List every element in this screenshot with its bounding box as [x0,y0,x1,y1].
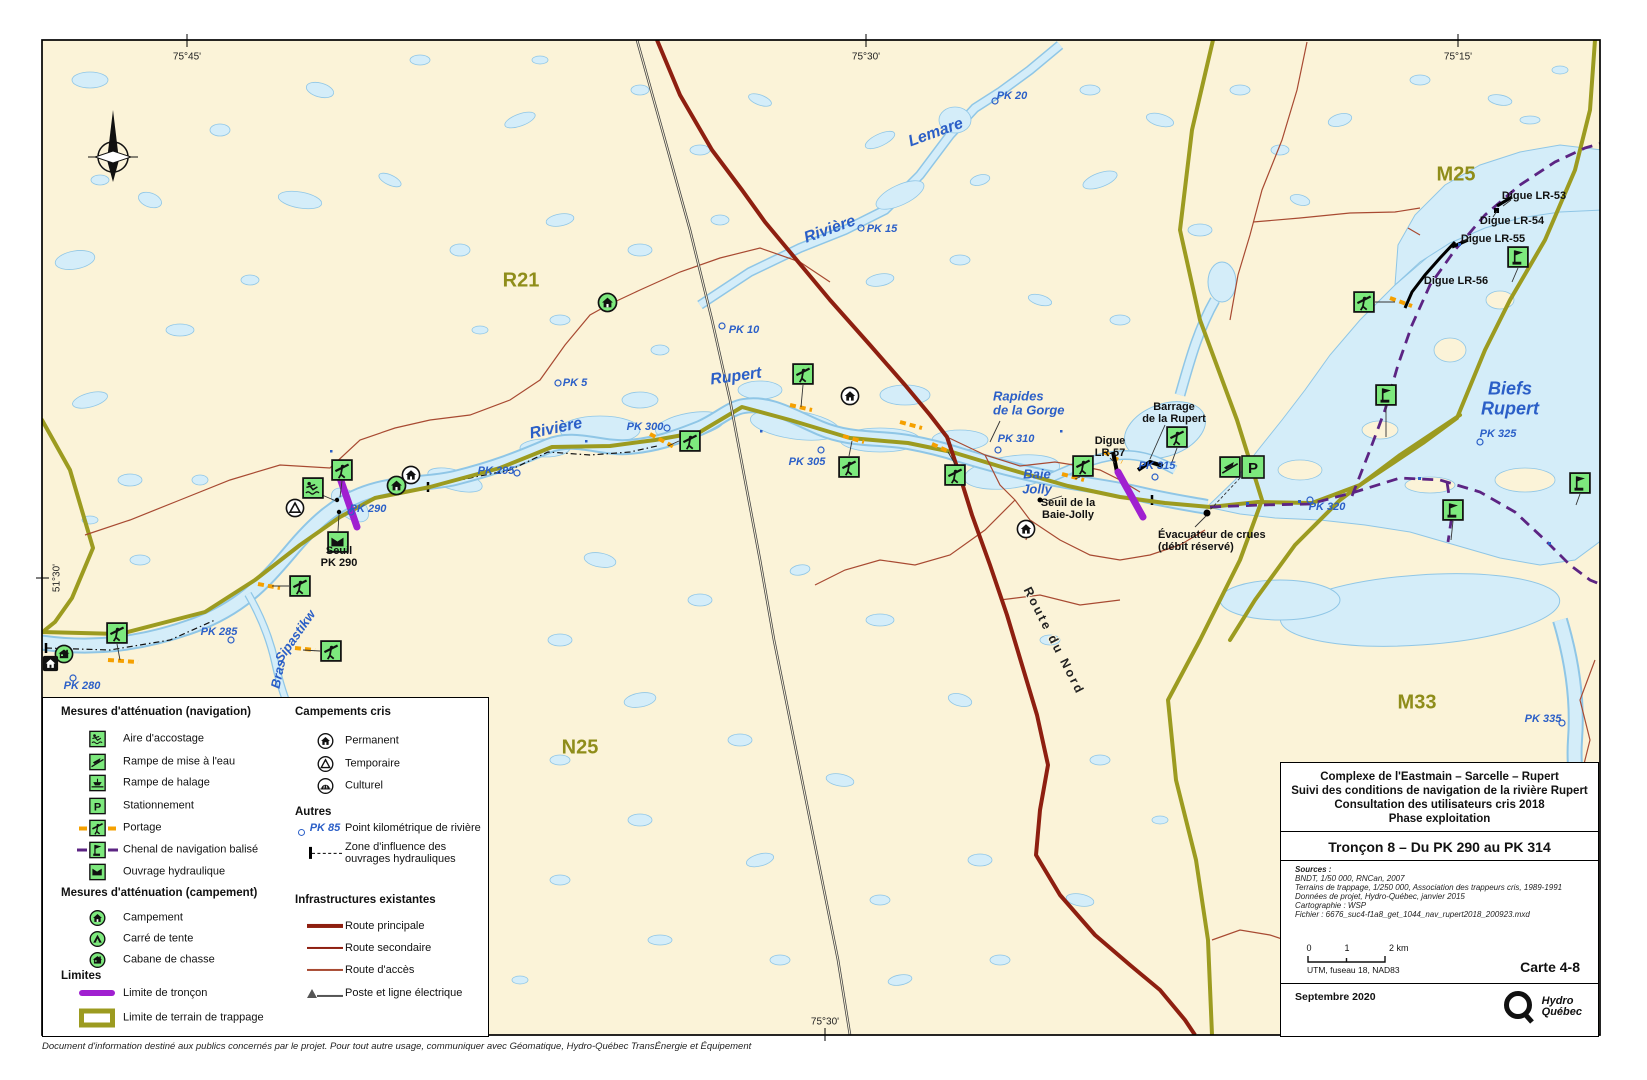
channel-flag-icon [1443,500,1463,520]
legend-section-campements-cris: Campements cris [295,706,391,718]
label-trapline-m25: M25 [1437,164,1476,187]
portage-icon [680,431,700,451]
label-pk-300: PK 300 [627,421,664,433]
legend-label: Limite de terrain de trappage [123,1012,264,1024]
portage-icon [839,457,859,477]
svg-text:P: P [1248,460,1258,477]
label-digue-lr53: Digue LR-53 [1502,190,1566,202]
scale-bar [1307,955,1397,963]
divider [1281,831,1598,832]
divider [1281,983,1598,984]
legend-item-chenal: Chenal de navigation balisé [71,842,258,859]
hydro-quebec-logo-text: Hydro Québec [1542,996,1582,1018]
parking-icon: P [1242,456,1264,478]
hydro-quebec-logo-icon [1503,989,1537,1025]
label-pk-280: PK 280 [64,680,101,692]
footer-note: Document d'information destiné aux publi… [42,1041,751,1052]
legend-item-carre-tente: Carré de tente [71,931,193,948]
dark-house-icon [43,656,58,671]
channel-flag-icon [1376,385,1396,405]
label-evacuateur: (débit réservé) [1158,541,1234,553]
legend-item-accostage: Aire d'accostage [71,731,204,748]
map-title-line: Phase exploitation [1281,813,1598,825]
legend-label-line: ouvrages hydrauliques [345,853,456,865]
label-pk-310: PK 310 [998,433,1035,445]
boat-ramp-icon [1220,457,1240,477]
portage-icon [290,576,310,596]
hydraulic-structure-icon [71,864,123,881]
label-trapline-m33: M33 [1398,692,1437,715]
legend-label: Poste et ligne électrique [345,987,462,999]
campement-icon [71,910,123,927]
legend-label: Cabane de chasse [123,954,215,966]
source-line: BNDT, 1/50 000, RNCan, 2007 [1295,874,1405,883]
legend-item-stationnement: P Stationnement [71,798,194,815]
graticule-label: 51°30' [52,564,63,592]
map-title-line: Complexe de l'Eastmain – Sarcelle – Rupe… [1281,771,1598,783]
label-trapline-r21: R21 [503,270,540,293]
legend-item-permanent: Permanent [305,733,399,750]
tent-square-icon [71,931,123,948]
map-number: Carte 4-8 [1520,959,1580,975]
legend-label: Aire d'accostage [123,733,204,745]
portage-icon [321,641,341,661]
power-line-icon [305,989,345,998]
source-line: Terrains de trappage, 1/250 000, Associa… [1295,883,1562,892]
legend-item-rampe-halage: Rampe de halage [71,775,210,792]
label-baie-jolly: Jolly [1022,482,1052,497]
legend-label: Route principale [345,920,425,932]
haul-ramp-icon [71,775,123,792]
legend-label: Ouvrage hydraulique [123,866,225,878]
label-baie-jolly: Baie [1023,467,1050,482]
label-digue-lr55: Digue LR-55 [1461,233,1525,245]
legend-label: Portage [123,822,162,834]
label-pk-295: PK 295 [478,465,515,477]
scale-number: 2 km [1389,943,1409,953]
legend-box: Mesures d'atténuation (navigation) Aire … [42,697,489,1037]
label-seuil-baie-jolly: Seuil de la [1041,497,1095,509]
route-acces-icon [305,969,345,971]
label-pk-20: PK 20 [997,90,1028,102]
label-digue-lr54: Digue LR-54 [1480,215,1544,227]
portage-icon [945,465,965,485]
legend-label-line: Zone d'influence des [345,841,446,853]
label-biefs-rupert: Biefs [1488,379,1532,400]
pk-point-icon: PK 85 [305,822,345,834]
legend-label: Route d'accès [345,964,414,976]
legend-label: Chenal de navigation balisé [123,844,258,856]
legend-item-culturel: Culturel [305,778,383,795]
legend-item-point-km: PK 85 Point kilométrique de rivière [305,822,481,834]
legend-label: Zone d'influence des ouvrages hydrauliqu… [345,841,456,865]
label-barrage-rupert: Barrage [1153,401,1195,413]
campement-icon [598,293,616,311]
label-seuil-pk290: Seuil [326,545,352,557]
label-seuil-baie-jolly: Baie-Jolly [1042,509,1094,521]
legend-item-rampe-eau: Rampe de mise à l'eau [71,754,235,771]
legend-section-navigation: Mesures d'atténuation (navigation) [61,706,251,718]
legend-label: Carré de tente [123,933,193,945]
portage-icon [793,364,813,384]
legend-item-poste-ligne: Poste et ligne électrique [305,987,462,999]
legend-item-limite-trappage: Limite de terrain de trappage [71,1009,264,1028]
permanent-camp-icon [841,387,858,404]
source-line: Fichier : 6676_suc4-f1a8_get_1044_nav_ru… [1295,910,1530,919]
label-pk-290: PK 290 [350,503,387,515]
zone-influence-icon [305,847,345,859]
graticule-label: 75°30' [852,52,880,63]
map-title-line: Suivi des conditions de navigation de la… [1281,785,1598,797]
label-pk-320: PK 320 [1309,501,1346,513]
label-seuil-pk290: PK 290 [321,557,358,569]
legend-section-campement: Mesures d'atténuation (campement) [61,887,257,899]
legend-item-cabane: Cabane de chasse [71,952,215,969]
label-rapides-gorge: de la Gorge [993,403,1065,418]
limite-trappage-icon [71,1009,123,1028]
legend-label: Rampe de mise à l'eau [123,756,235,768]
docking-area-icon [303,478,323,498]
source-line: Données de projet, Hydro-Québec, janvier… [1295,892,1465,901]
hydro-quebec-logo: Hydro Québec [1503,989,1582,1025]
legend-item-limite-troncon: Limite de tronçon [71,987,207,999]
permanent-camp-icon [305,733,345,750]
label-trapline-n25: N25 [562,737,599,760]
legend-label: Temporaire [345,758,400,770]
title-block: Complexe de l'Eastmain – Sarcelle – Rupe… [1280,762,1599,1037]
label-digue-lr57: LR-57 [1095,447,1126,459]
legend-section-infrastructures: Infrastructures existantes [295,894,436,906]
map-date: Septembre 2020 [1295,991,1376,1003]
label-pk-10: PK 10 [729,324,760,336]
portage-icon [1167,427,1187,447]
legend-section-autres: Autres [295,806,331,818]
portage-icon [107,623,127,643]
scale-number: 1 [1344,943,1349,953]
parking-icon: P [71,798,123,815]
sources-label: Sources : [1295,865,1331,874]
portage-icon [71,820,123,837]
map-document: P 75°45' 75°30' 75°15' 75°30' 51°30' PK … [0,0,1647,1080]
label-evacuateur: Évacuateur de crues [1158,529,1266,541]
permanent-camp-icon [1017,520,1034,537]
docking-area-icon [71,731,123,748]
datum-label: UTM, fuseau 18, NAD83 [1307,965,1400,975]
legend-item-zone-influence: Zone d'influence des ouvrages hydrauliqu… [305,841,456,865]
logo-word: Québec [1542,1007,1582,1018]
label-pk-325: PK 325 [1480,428,1517,440]
channel-flag-icon [1508,247,1528,267]
channel-flag-icon [71,842,123,859]
limite-troncon-icon [71,990,123,996]
divider [1281,860,1598,861]
label-digue-lr56: Digue LR-56 [1424,275,1488,287]
graticule-label: 75°45' [173,52,201,63]
legend-item-temporaire: Temporaire [305,756,400,773]
label-pk-335: PK 335 [1525,713,1562,725]
legend-item-ouvrage: Ouvrage hydraulique [71,864,225,881]
graticule-label: 75°15' [1444,52,1472,63]
route-secondaire-icon [305,947,345,949]
portage-icon [1354,292,1374,312]
label-barrage-rupert: de la Rupert [1142,413,1206,425]
map-title-line: Consultation des utilisateurs cris 2018 [1281,799,1598,811]
svg-text:P: P [93,801,100,813]
legend-label: Culturel [345,780,383,792]
label-rapides-gorge: Rapides [993,389,1044,404]
label-pk-285: PK 285 [201,626,238,638]
legend-item-route-secondaire: Route secondaire [305,942,431,954]
legend-label: Point kilométrique de rivière [345,822,481,834]
label-pk-15: PK 15 [867,223,898,235]
portage-icon [1073,456,1093,476]
label-biefs-rupert: Rupert [1481,399,1539,420]
tent-square-icon [286,499,303,516]
legend-item-portage: Portage [71,820,162,837]
legend-label: Rampe de halage [123,777,210,789]
legend-item-route-acces: Route d'accès [305,964,414,976]
source-line: Cartographie : WSP [1295,901,1366,910]
legend-label: Stationnement [123,800,194,812]
hunting-cabin-icon [71,952,123,969]
temporary-camp-icon [305,756,345,773]
scale-number: 0 [1306,943,1311,953]
legend-item-campement: Campement [71,910,183,927]
legend-label: Permanent [345,735,399,747]
boat-ramp-icon [71,754,123,771]
legend-label: Campement [123,912,183,924]
portage-icon [332,460,352,480]
legend-section-limites: Limites [61,970,101,982]
label-pk-305: PK 305 [789,456,826,468]
permanent-camp-icon [402,466,419,483]
legend-label: Limite de tronçon [123,987,207,999]
label-pk-315: PK 315 [1139,460,1176,472]
legend-label: Route secondaire [345,942,431,954]
cultural-camp-icon [305,778,345,795]
troncon-title: Tronçon 8 – Du PK 290 au PK 314 [1281,839,1598,855]
label-pk-5: PK 5 [563,377,587,389]
channel-flag-icon [1570,473,1590,493]
graticule-label: 75°30' [811,1017,839,1028]
label-digue-lr57: Digue [1095,435,1126,447]
route-principale-icon [305,924,345,928]
legend-item-route-principale: Route principale [305,920,425,932]
